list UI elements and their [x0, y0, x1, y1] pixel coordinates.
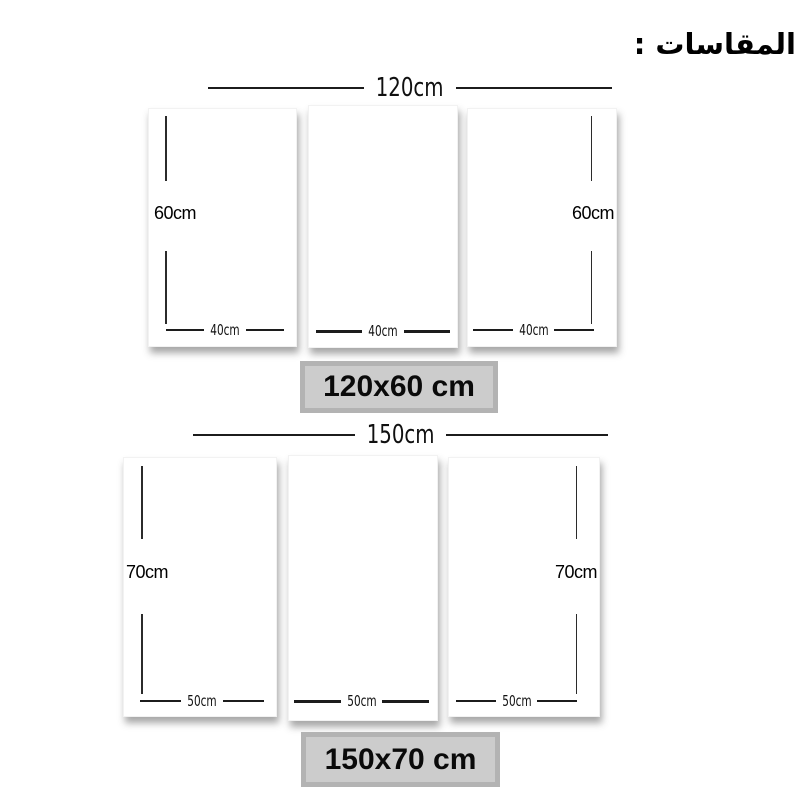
height-label: 60cm	[154, 203, 196, 224]
page-title: المقاسات :	[634, 27, 796, 61]
width-label: 40cm	[210, 321, 239, 339]
height-dim-line-upper	[165, 116, 167, 181]
canvas-panel-top-left: 60cm 40cm	[148, 108, 297, 347]
height-label: 60cm	[572, 203, 614, 224]
total-width-dimension-120: 120cm	[208, 73, 612, 103]
canvas-panel-bottom-middle: 50cm	[288, 455, 438, 721]
height-dim-line-upper	[141, 466, 143, 539]
width-dim-line-right	[223, 700, 264, 702]
height-label: 70cm	[555, 562, 597, 583]
width-dimension: 40cm	[473, 321, 594, 339]
total-width-label-150: 150cm	[366, 420, 435, 450]
height-dim-line-lower	[576, 614, 578, 694]
width-dimension: 40cm	[316, 322, 450, 340]
width-label: 50cm	[502, 692, 531, 710]
height-dim-line-lower	[591, 251, 593, 324]
width-dim-line-left	[140, 700, 181, 702]
canvas-panel-top-middle: 40cm	[308, 105, 458, 348]
size-badge-150x70: 150x70 cm	[301, 732, 500, 787]
width-dim-line-right	[554, 329, 594, 331]
width-dim-line-left	[456, 700, 496, 702]
height-dim-line-lower	[141, 614, 143, 694]
size-badge-label: 120x60 cm	[305, 366, 493, 408]
total-width-dimension-150: 150cm	[193, 420, 608, 450]
width-dimension: 50cm	[140, 692, 264, 710]
width-dim-line-right	[246, 329, 284, 331]
dim-line-right	[446, 434, 608, 436]
dim-line-left	[193, 434, 355, 436]
height-dim-line-lower	[165, 251, 167, 324]
total-width-label-120: 120cm	[375, 73, 444, 103]
height-dim-line-upper	[576, 466, 578, 539]
height-dim-line-upper	[591, 116, 593, 181]
dim-line-left	[208, 87, 364, 89]
width-dim-line-right	[404, 330, 450, 333]
width-dim-line-left	[294, 700, 341, 703]
width-label: 50cm	[187, 692, 216, 710]
width-label: 40cm	[519, 321, 548, 339]
height-label: 70cm	[126, 562, 168, 583]
width-dimension: 50cm	[294, 692, 429, 710]
width-dim-line-left	[316, 330, 362, 333]
canvas-panel-top-right: 60cm 40cm	[467, 108, 617, 347]
size-guide-page: المقاسات : 120cm 60cm 40cm 40cm 60cm 40c…	[0, 0, 800, 800]
size-badge-label: 150x70 cm	[306, 737, 495, 782]
width-dim-line-right	[537, 700, 577, 702]
width-dimension: 40cm	[166, 321, 284, 339]
width-label: 40cm	[368, 322, 397, 340]
canvas-panel-bottom-left: 70cm 50cm	[123, 457, 277, 717]
width-dim-line-left	[166, 329, 204, 331]
width-label: 50cm	[347, 692, 376, 710]
width-dim-line-right	[382, 700, 429, 703]
canvas-panel-bottom-right: 70cm 50cm	[448, 457, 600, 717]
width-dim-line-left	[473, 329, 513, 331]
dim-line-right	[456, 87, 612, 89]
size-badge-120x60: 120x60 cm	[300, 361, 498, 413]
width-dimension: 50cm	[456, 692, 577, 710]
